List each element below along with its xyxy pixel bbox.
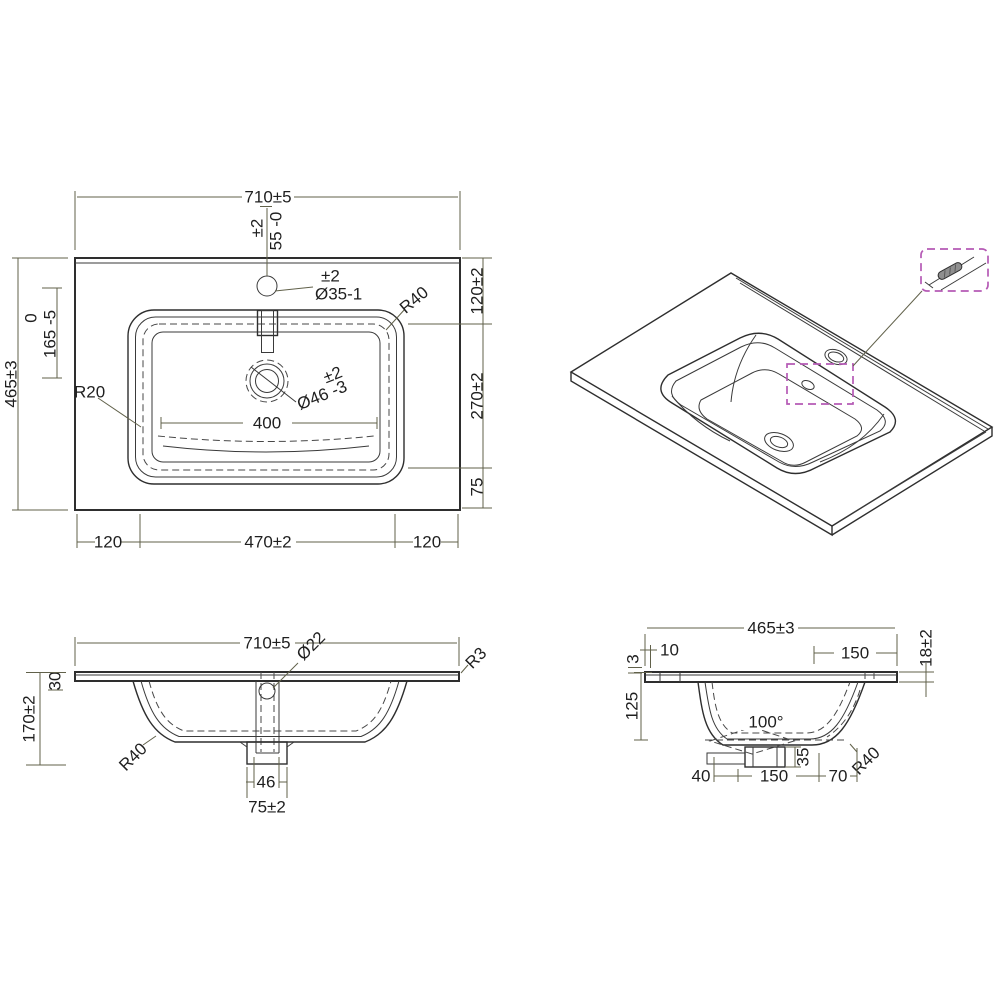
side-drain-boss [745, 747, 785, 767]
plan-bottom-right-dim-label: 120 [413, 533, 441, 552]
plan-width-dim-label: 710±5 [244, 188, 291, 207]
front-waste-side-hole [259, 683, 275, 699]
front-waste-tube [240, 672, 294, 764]
side-lip-height-dim-label: 3 [624, 654, 643, 663]
iso-overflow-hole [800, 379, 815, 392]
side-slab-thickness-label: 18±2 [917, 629, 936, 667]
front-countertop [75, 672, 459, 681]
plan-inner-width-label: 400 [253, 414, 281, 433]
plan-tap-dia-tol-label: ±2 [321, 267, 340, 286]
plan-tap-offset-tol-label: ±2 [248, 219, 267, 238]
plan-view: 710±5 ±2 55 -0 ±2 Ø35-1 R40 120±2 270±2 … [2, 188, 493, 552]
plan-inner-radius-label: R20 [74, 383, 105, 402]
plan-tap-dia-label: Ø35-1 [315, 285, 362, 304]
front-bowl-radius-label: R40 [115, 739, 150, 774]
technical-drawing-canvas: 710±5 ±2 55 -0 ±2 Ø35-1 R40 120±2 270±2 … [0, 0, 1000, 1000]
front-waste-width-label: 46 [257, 773, 276, 792]
side-view: 465±3 10 3 125 150 18±2 [623, 619, 936, 786]
front-boss-width-label: 75±2 [248, 798, 286, 817]
side-cone-angle-label: 100° [748, 713, 783, 732]
plan-basin-pos-label: 165 -5 [41, 310, 60, 358]
side-bot-right-dim-label: 70 [829, 767, 848, 786]
front-apron-dim-label: 30 [46, 672, 65, 691]
plan-right-bot-dim-label: 75 [468, 478, 487, 497]
front-waste-dia-label: Ø22 [293, 628, 329, 664]
side-tap-zone-dim-label: 150 [841, 644, 869, 663]
front-width-dim-label: 710±5 [243, 634, 290, 653]
plan-depth-dim-label: 465±3 [2, 360, 21, 407]
iso-countertop [571, 273, 992, 535]
iso-basin [661, 333, 896, 473]
side-front-lip-dim-label: 10 [660, 641, 679, 660]
detail-overflow-slot [937, 261, 964, 281]
plan-drain-dia-label: Ø46 -3 [294, 377, 349, 414]
side-boss-height-label: 35 [794, 748, 813, 767]
plan-drain-hole [246, 360, 296, 402]
side-depth-dim-label: 465±3 [747, 619, 794, 638]
side-dimensions: 465±3 10 3 125 150 18±2 [623, 619, 936, 786]
front-height-dim-label: 170±2 [20, 695, 39, 742]
plan-bottom-mid-dim-label: 470±2 [244, 533, 291, 552]
plan-right-top-dim-label: 120±2 [468, 267, 487, 314]
iso-drain-hole [762, 429, 796, 455]
side-countertop [645, 672, 897, 682]
front-view: 710±5 Ø22 R3 30 170±2 R40 46 [20, 628, 491, 817]
iso-view [571, 249, 992, 535]
technical-drawing-page: 710±5 ±2 55 -0 ±2 Ø35-1 R40 120±2 270±2 … [0, 0, 1000, 1000]
plan-rim-radius-label: R40 [396, 283, 432, 318]
plan-tap-offset-label: 55 -0 [267, 212, 286, 251]
side-bowl-depth-dim-label: 125 [623, 692, 642, 720]
front-bowl [133, 681, 407, 742]
plan-right-mid-dim-label: 270±2 [468, 372, 487, 419]
plan-bottom-left-dim-label: 120 [94, 533, 122, 552]
front-dimensions: 710±5 Ø22 R3 30 170±2 R40 46 [20, 628, 491, 817]
side-bot-mid-dim-label: 150 [760, 767, 788, 786]
side-bot-left-dim-label: 40 [692, 767, 711, 786]
plan-basin-pos-upper-label: 0 [22, 313, 41, 322]
